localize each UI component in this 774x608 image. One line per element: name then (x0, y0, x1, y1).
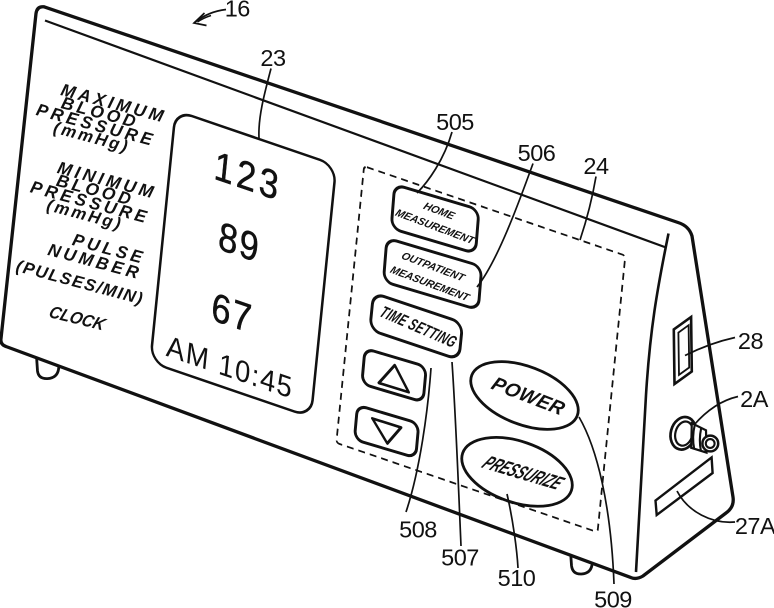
svg-text:508: 508 (399, 517, 437, 543)
svg-text:509: 509 (594, 587, 632, 608)
svg-text:507: 507 (441, 545, 479, 571)
svg-text:24: 24 (583, 153, 609, 179)
svg-text:27A: 27A (735, 513, 774, 539)
svg-text:28: 28 (738, 328, 764, 354)
svg-text:506: 506 (518, 140, 556, 166)
svg-text:23: 23 (260, 45, 286, 71)
svg-text:510: 510 (498, 565, 536, 591)
svg-text:2A: 2A (740, 386, 769, 412)
svg-text:16: 16 (225, 0, 251, 22)
svg-text:505: 505 (436, 109, 474, 135)
